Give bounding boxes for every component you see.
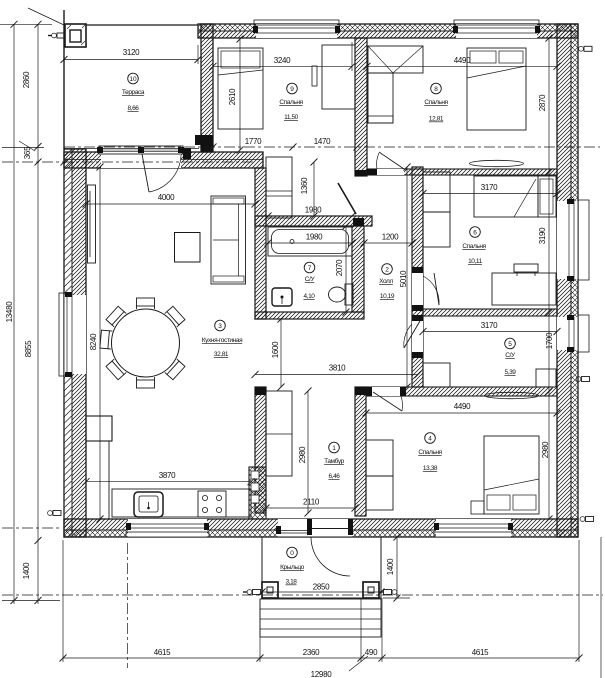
svg-text:4490: 4490 — [454, 402, 471, 411]
svg-text:32,81: 32,81 — [214, 351, 229, 358]
svg-text:9: 9 — [290, 86, 294, 93]
svg-text:0: 0 — [290, 550, 294, 557]
svg-text:6,46: 6,46 — [328, 473, 340, 480]
svg-text:Холл: Холл — [379, 278, 393, 285]
svg-text:2070: 2070 — [335, 259, 344, 276]
svg-text:С/У: С/У — [505, 352, 516, 359]
svg-text:13,38: 13,38 — [423, 465, 438, 472]
svg-text:1: 1 — [332, 445, 336, 452]
svg-text:С/У: С/У — [305, 276, 316, 283]
svg-text:8240: 8240 — [89, 333, 98, 350]
svg-text:4: 4 — [428, 436, 432, 443]
svg-text:490: 490 — [365, 648, 378, 657]
svg-text:4490: 4490 — [454, 56, 471, 65]
svg-text:1200: 1200 — [382, 233, 399, 242]
svg-text:4000: 4000 — [158, 193, 175, 202]
svg-text:6: 6 — [473, 230, 477, 237]
svg-text:4615: 4615 — [472, 648, 489, 657]
svg-text:2850: 2850 — [313, 583, 330, 592]
svg-text:Спальня: Спальня — [462, 243, 486, 250]
svg-text:2980: 2980 — [298, 446, 307, 463]
svg-text:3120: 3120 — [123, 48, 140, 57]
svg-text:1980: 1980 — [305, 206, 322, 215]
svg-text:2110: 2110 — [303, 498, 320, 507]
svg-text:2870: 2870 — [538, 94, 547, 111]
svg-text:4615: 4615 — [154, 648, 171, 657]
svg-text:1980: 1980 — [306, 233, 323, 242]
svg-text:Кухня-гостиная: Кухня-гостиная — [202, 337, 243, 344]
svg-text:1470: 1470 — [314, 137, 331, 146]
svg-text:11,50: 11,50 — [284, 114, 299, 121]
svg-text:1700: 1700 — [545, 332, 554, 349]
svg-text:Тамбур: Тамбур — [324, 457, 344, 465]
svg-text:1400: 1400 — [386, 558, 395, 575]
svg-text:8,66: 8,66 — [127, 105, 139, 112]
svg-text:7: 7 — [308, 265, 312, 272]
svg-text:5: 5 — [508, 341, 512, 348]
svg-text:4,10: 4,10 — [303, 293, 315, 300]
svg-text:13480: 13480 — [5, 301, 14, 323]
svg-text:10,11: 10,11 — [468, 258, 483, 265]
svg-text:3240: 3240 — [274, 56, 291, 65]
svg-text:Спальня: Спальня — [424, 99, 448, 106]
svg-text:3170: 3170 — [481, 321, 498, 330]
svg-text:3,18: 3,18 — [285, 579, 297, 586]
svg-text:3170: 3170 — [481, 183, 498, 192]
svg-text:2360: 2360 — [303, 648, 320, 657]
svg-text:5010: 5010 — [399, 270, 408, 287]
svg-text:Спальня: Спальня — [418, 449, 442, 456]
svg-text:Спальня: Спальня — [279, 99, 303, 106]
svg-text:2610: 2610 — [228, 88, 237, 105]
svg-text:12,81: 12,81 — [429, 116, 444, 123]
svg-text:1400: 1400 — [22, 562, 31, 579]
svg-text:1770: 1770 — [245, 137, 262, 146]
svg-text:12980: 12980 — [311, 670, 333, 678]
svg-text:8855: 8855 — [24, 340, 33, 357]
svg-text:10: 10 — [129, 76, 137, 83]
svg-text:1600: 1600 — [271, 341, 280, 358]
svg-text:3810: 3810 — [329, 364, 346, 373]
svg-text:Терраса: Терраса — [122, 89, 145, 96]
svg-text:2860: 2860 — [22, 71, 31, 88]
svg-text:2: 2 — [385, 267, 389, 274]
svg-text:1360: 1360 — [300, 177, 309, 194]
svg-text:3190: 3190 — [538, 227, 547, 244]
svg-text:10,19: 10,19 — [380, 293, 395, 300]
svg-text:Крыльцо: Крыльцо — [280, 564, 305, 571]
svg-text:5,39: 5,39 — [504, 369, 516, 376]
svg-text:3: 3 — [218, 323, 222, 330]
svg-text:3870: 3870 — [159, 471, 176, 480]
svg-text:8: 8 — [434, 86, 438, 93]
svg-text:2980: 2980 — [541, 441, 550, 458]
svg-text:365: 365 — [23, 146, 32, 159]
